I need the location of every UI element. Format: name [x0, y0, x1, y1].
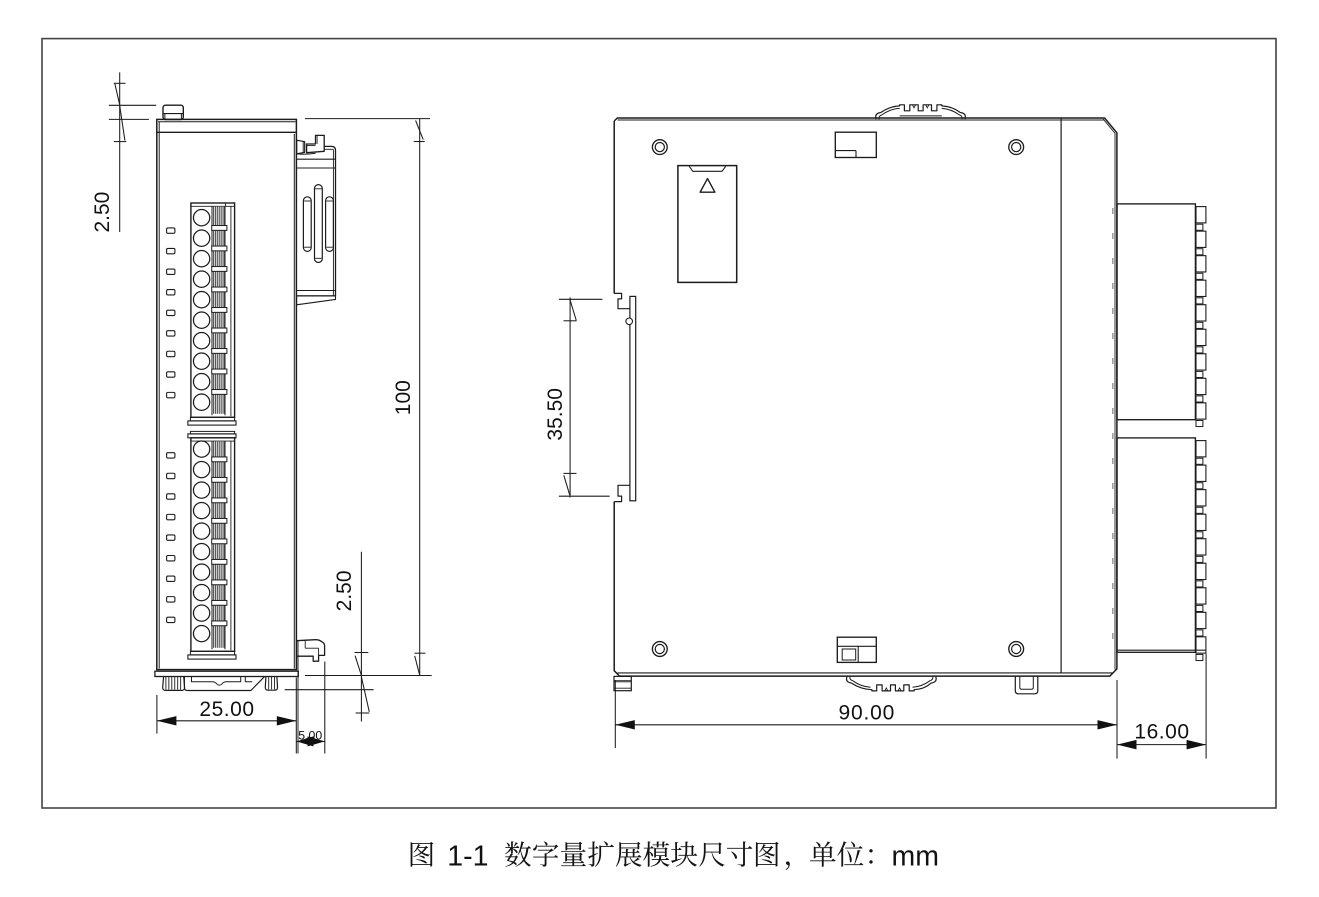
svg-text:100: 100 — [392, 380, 415, 415]
svg-text:2.50: 2.50 — [91, 192, 114, 233]
svg-text:90.00: 90.00 — [839, 701, 896, 724]
svg-text:mm: mm — [892, 840, 939, 872]
svg-text:25.00: 25.00 — [199, 698, 254, 721]
svg-text:2.50: 2.50 — [333, 570, 356, 611]
svg-text:5.00: 5.00 — [298, 728, 322, 742]
svg-text:1-1: 1-1 — [447, 840, 488, 872]
svg-text:16.00: 16.00 — [1134, 721, 1189, 744]
svg-text:35.50: 35.50 — [544, 388, 567, 441]
